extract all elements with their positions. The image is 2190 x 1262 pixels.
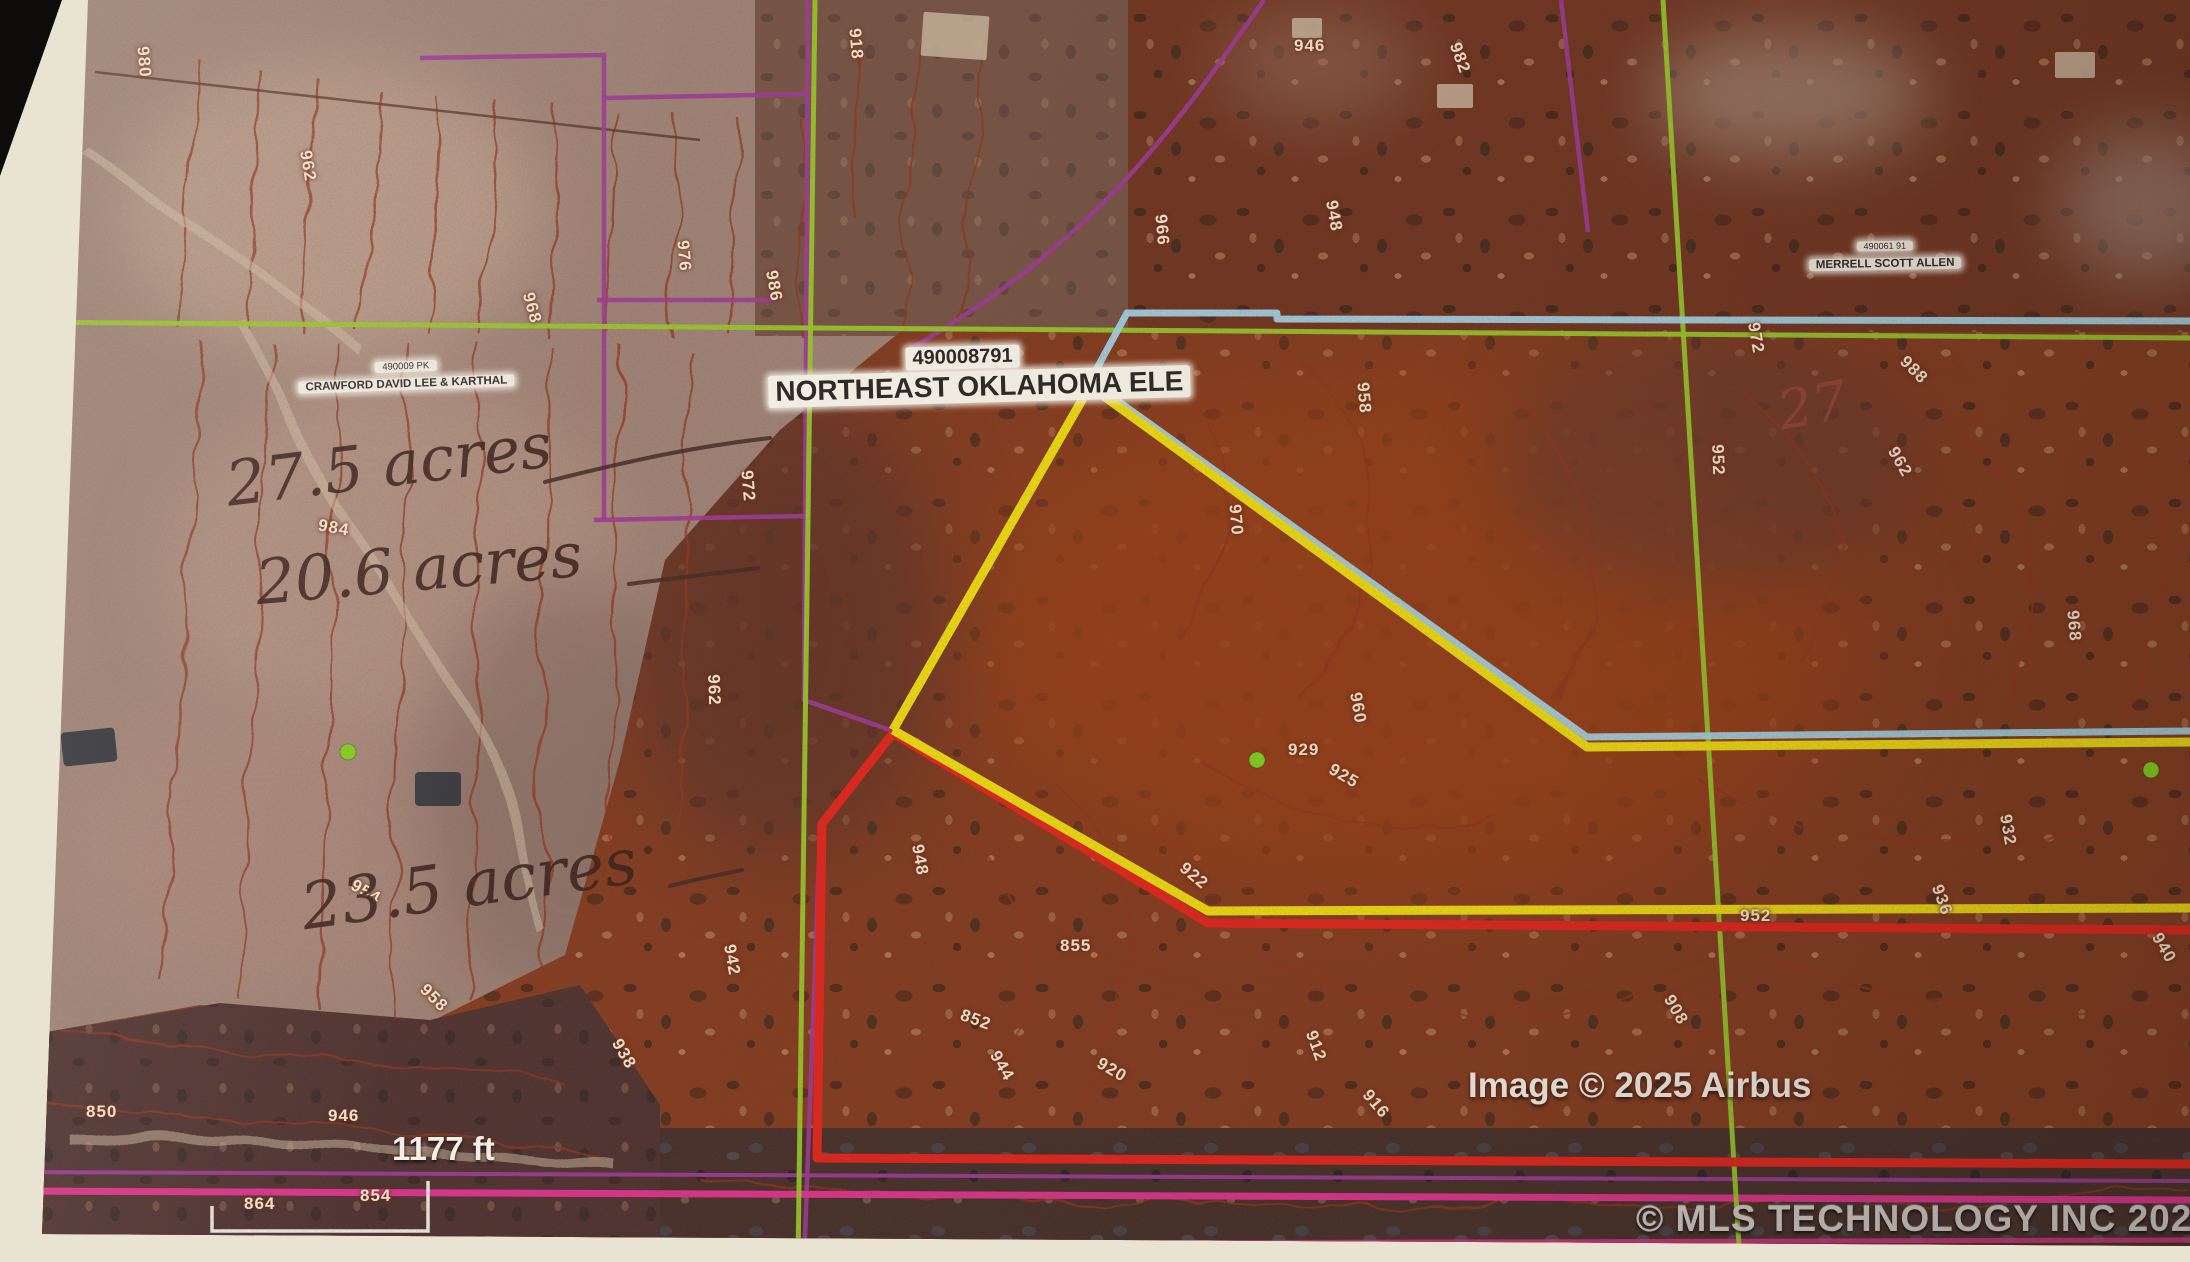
contour-label: 864 bbox=[244, 1194, 275, 1214]
contour-label: 968 bbox=[518, 290, 545, 325]
owner-label-merrell: 490061 91 MERRELL SCOTT ALLEN bbox=[1800, 235, 1971, 274]
contour-label: 855 bbox=[1060, 936, 1091, 956]
building bbox=[921, 12, 990, 60]
contour-label: 854 bbox=[360, 1186, 391, 1206]
imagery-credit: Image © 2025 Airbus bbox=[1468, 1066, 1812, 1106]
provider-credit: © MLS TECHNOLOGY INC 2025 bbox=[1636, 1198, 2190, 1240]
building bbox=[1437, 84, 1473, 108]
owner-id: 490009 PK bbox=[375, 360, 436, 373]
building bbox=[2055, 52, 2095, 78]
contour-label: 952 bbox=[1740, 906, 1771, 926]
map-canvas[interactable]: 9809629689769869189469829489669849729629… bbox=[0, 0, 2190, 1262]
contour-label: 850 bbox=[86, 1102, 117, 1122]
contour-label: 980 bbox=[132, 46, 155, 79]
contour-label: 966 bbox=[1150, 214, 1173, 247]
owner-id: 490061 91 bbox=[1856, 241, 1913, 252]
photo-background: 9809629689769869189469829489669849729629… bbox=[0, 0, 2190, 1262]
contour-label: 946 bbox=[1294, 36, 1325, 56]
contour-label: 972 bbox=[736, 470, 759, 503]
contour-label: 958 bbox=[416, 980, 452, 1016]
contour-label: 929 bbox=[1288, 740, 1319, 760]
owner-name: MERRELL SCOTT ALLEN bbox=[1809, 257, 1962, 272]
contour-label: 952 bbox=[1707, 444, 1728, 476]
contour-label: 918 bbox=[844, 28, 867, 61]
field-pink-patch bbox=[60, 700, 480, 1000]
contour-label: 962 bbox=[703, 674, 724, 706]
handwritten-corner-note: 27 bbox=[1773, 369, 1852, 443]
owner-label-crawford: 490009 PK CRAWFORD DAVID LEE & KARTHAL bbox=[295, 352, 516, 396]
contour-label: 968 bbox=[2062, 610, 2085, 643]
contour-label: 946 bbox=[328, 1106, 359, 1126]
building bbox=[1292, 18, 1322, 38]
pond bbox=[415, 772, 461, 806]
terrain-topright-woods bbox=[1128, 0, 2190, 336]
parcel-id: 490008791 bbox=[905, 345, 1020, 371]
scale-label: 1177 ft bbox=[392, 1130, 495, 1168]
owner-name: CRAWFORD DAVID LEE & KARTHAL bbox=[298, 374, 514, 394]
pond bbox=[60, 727, 117, 766]
contour-label: 970 bbox=[1224, 504, 1247, 537]
parcel-label-northeast-oklahoma: 490008791 NORTHEAST OKLAHOMA ELE bbox=[767, 341, 1158, 408]
contour-label: 976 bbox=[672, 240, 695, 273]
field-light-patch bbox=[120, 60, 540, 360]
contour-label: 958 bbox=[1352, 382, 1375, 415]
